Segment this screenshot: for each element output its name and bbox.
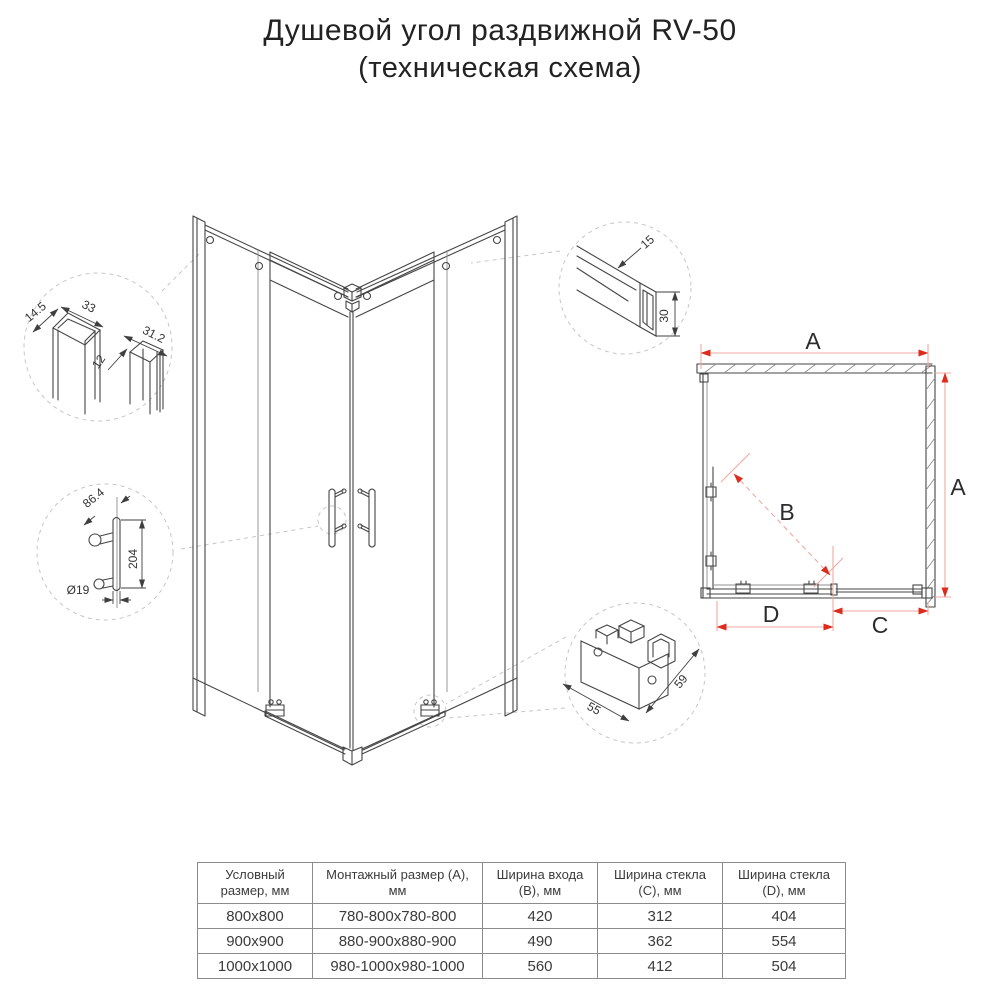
isometric-view	[193, 216, 517, 765]
table-row: 1000х1000 980-1000х980-1000 560 412 504	[198, 954, 846, 979]
table-row: 900х900 880-900х880-900 490 362 554	[198, 929, 846, 954]
dim-bracket-width: 55	[585, 699, 604, 718]
table-cell: 362	[598, 929, 723, 954]
technical-drawing: 14.5 33 31.2 12 86.4 204 Ø19	[0, 0, 1000, 860]
detail-handle: 86.4 204 Ø19	[37, 484, 173, 620]
door-handle-left	[329, 489, 346, 547]
plan-dim-door-label: D	[763, 601, 780, 627]
plan-dim-glass-label: C	[872, 612, 889, 638]
technical-schematic-page: Душевой угол раздвижной RV-50 (техническ…	[0, 0, 1000, 1000]
table-cell: 880-900х880-900	[313, 929, 483, 954]
table-cell: 1000х1000	[198, 954, 313, 979]
table-cell: 980-1000х980-1000	[313, 954, 483, 979]
table-cell: 420	[483, 904, 598, 929]
dim-profile-depth: 33	[80, 297, 99, 316]
dim-handle-offset: 86.4	[80, 485, 107, 511]
table-header-cell: Условный размер, мм	[198, 863, 313, 904]
table-cell: 312	[598, 904, 723, 929]
plan-dim-height-label: A	[950, 474, 966, 500]
table-cell: 490	[483, 929, 598, 954]
plan-dim-diagonal-label: B	[779, 499, 794, 525]
table-cell: 800х800	[198, 904, 313, 929]
detail-top-rail: 15 30	[559, 222, 691, 354]
table-cell: 554	[723, 929, 846, 954]
dim-handle-length: 204	[126, 549, 140, 569]
table-cell: 504	[723, 954, 846, 979]
plan-dim-width-label: A	[805, 328, 821, 354]
door-handle-right	[358, 489, 375, 547]
bottom-roller-right	[421, 700, 439, 716]
plan-view: A A B D C	[697, 328, 966, 638]
table-header-cell: Ширина входа (B), мм	[483, 863, 598, 904]
table-row: 800х800 780-800х780-800 420 312 404	[198, 904, 846, 929]
detail-wall-profiles: 14.5 33 31.2 12	[22, 273, 172, 421]
dim-handle-diameter: Ø19	[67, 583, 90, 597]
dim-profile-gap: 12	[89, 352, 108, 371]
detail-bottom-bracket: 55 59	[563, 603, 705, 743]
table-cell: 412	[598, 954, 723, 979]
table-header-cell: Ширина стекла (D), мм	[723, 863, 846, 904]
table-header-cell: Ширина стекла (C), мм	[598, 863, 723, 904]
table-cell: 560	[483, 954, 598, 979]
dim-door-profile: 31.2	[140, 323, 167, 346]
dim-rail-height: 30	[657, 309, 671, 323]
table-header-row: Условный размер, мм Монтажный размер (А)…	[198, 863, 846, 904]
table-cell: 900х900	[198, 929, 313, 954]
size-table: Условный размер, мм Монтажный размер (А)…	[197, 862, 846, 979]
dim-bracket-depth: 59	[671, 672, 690, 691]
table-cell: 404	[723, 904, 846, 929]
table-cell: 780-800х780-800	[313, 904, 483, 929]
table-header-cell: Монтажный размер (А), мм	[313, 863, 483, 904]
